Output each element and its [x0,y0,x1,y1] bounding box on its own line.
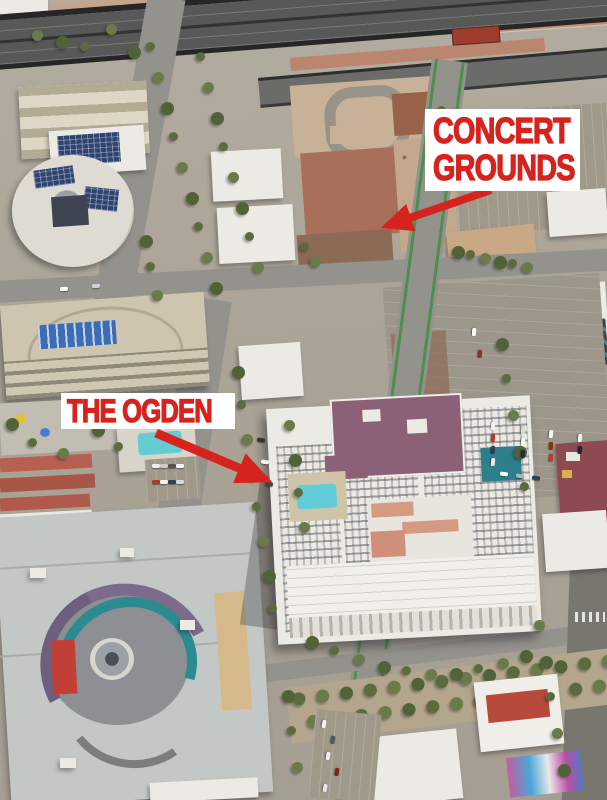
mall-roof-unit [180,620,195,630]
courtyard-cylinder [90,638,134,680]
tree [186,192,199,205]
tree [592,679,606,693]
ogden-teal-canopy [480,446,522,482]
parking-bottom [308,709,381,800]
building-right-1 [547,188,607,237]
the-ogden-label-text: THE OGDEN [67,393,212,429]
ogden-roof-unit [362,409,381,422]
apartments-red-2 [0,474,95,493]
tree [601,654,607,668]
dirt-lot [330,126,382,144]
apartments-red-3 [0,494,90,512]
crosswalk [575,612,605,622]
tree [203,82,214,93]
ogden-tile-strip [371,530,406,558]
civic-roof-core [51,195,89,227]
mall-roof-unit [60,758,76,768]
tree [411,677,425,691]
tree [330,646,339,655]
tree [578,657,592,671]
tree [458,671,472,685]
tree [177,162,188,173]
tree [402,702,416,716]
building-right-3 [542,510,607,572]
ogden-tile-strip [371,502,414,518]
tree [219,142,228,151]
tree [449,696,463,710]
shops-mid-1 [211,148,284,202]
tree [211,112,224,125]
tree [435,674,449,688]
the-ogden-label: THE OGDEN [61,393,235,429]
concert-grounds-label-line2: GROUNDS [433,149,575,186]
playground-yellow [14,414,26,424]
mall-roof-unit [120,548,134,557]
tree [363,683,377,697]
the-ogden-arrow [146,424,288,496]
mural-roof-strip [506,750,584,798]
tree [554,659,568,673]
tree [426,699,440,713]
tree [292,692,306,706]
tree [387,680,401,694]
annotated-aerial-map: CONCERT GROUNDS THE OGDEN [0,0,607,800]
ogden-roof-unit [407,419,428,434]
concert-grounds-label-line1: CONCERT [433,112,570,149]
concert-grounds-label: CONCERT GROUNDS [425,109,580,191]
tree [169,132,178,141]
gold-sign [562,470,572,478]
tree [339,686,353,700]
ogden-tower [266,395,542,644]
shops-mid-2 [217,204,296,264]
tree [569,682,583,696]
shops-mid-3 [238,342,304,400]
playground-blue [40,428,50,437]
parking-garage [0,292,210,400]
tree [146,262,155,271]
tree [202,252,213,263]
maroon-roof-unit [566,452,580,461]
tree [194,222,203,231]
maroon-building [555,440,607,519]
mall-roof-unit [30,568,46,578]
tree [316,689,330,703]
apartments-red-1 [0,454,92,473]
tree [292,762,303,773]
ogden-pool [296,484,337,510]
solar-panels [83,186,119,211]
red-roof-building [451,25,500,45]
